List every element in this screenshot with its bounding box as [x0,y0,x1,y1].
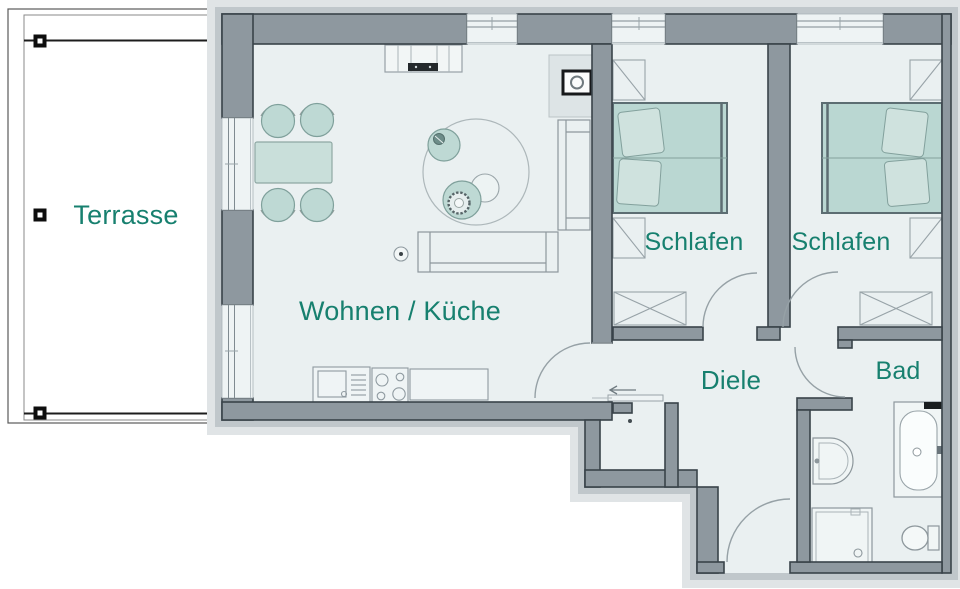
room-label-bad: Bad [858,358,938,384]
room-label-wohnen-kueche: Wohnen / Küche [280,297,520,325]
wood-stove-icon [563,71,591,94]
dining-chair-icon [262,189,295,222]
toilet-icon [902,526,939,550]
sliding-door-icon [608,395,663,401]
dining-table-icon [255,142,332,183]
kitchen-line [313,367,488,403]
kitchen-counter-icon [410,369,488,400]
window-icon [467,14,517,44]
room-label-terrasse: Terrasse [60,201,192,229]
floor-plan-svg [0,0,960,589]
dining-chair-icon [301,189,334,222]
lounge-chair-icon [428,129,460,161]
floor-plan: Terrasse Wohnen / Küche Schlafen Schlafe… [0,0,960,589]
shaft-marker [924,402,942,409]
shower-icon [812,508,872,567]
kitchen-sink-icon [313,367,370,402]
dining-chair-icon [301,104,334,137]
terrace-door-icon [222,305,253,398]
window-icon [612,14,665,44]
dining-set [255,104,334,222]
window-icon [222,118,253,210]
room-label-diele: Diele [681,367,781,394]
terrace-post-icon [34,35,47,420]
washbasin-icon [813,438,853,484]
floor-lamp-icon [394,247,408,261]
double-bed-icon [822,103,942,213]
window-icon [797,14,883,44]
room-label-schlafen-2: Schlafen [781,229,901,255]
dining-chair-icon [262,105,295,138]
floor-dot [628,419,632,423]
cooktop-icon [372,368,408,403]
bathtub-icon [894,402,942,497]
double-bed-icon [613,103,727,213]
tv-sideboard-icon [385,45,462,72]
room-label-schlafen-1: Schlafen [634,229,754,255]
